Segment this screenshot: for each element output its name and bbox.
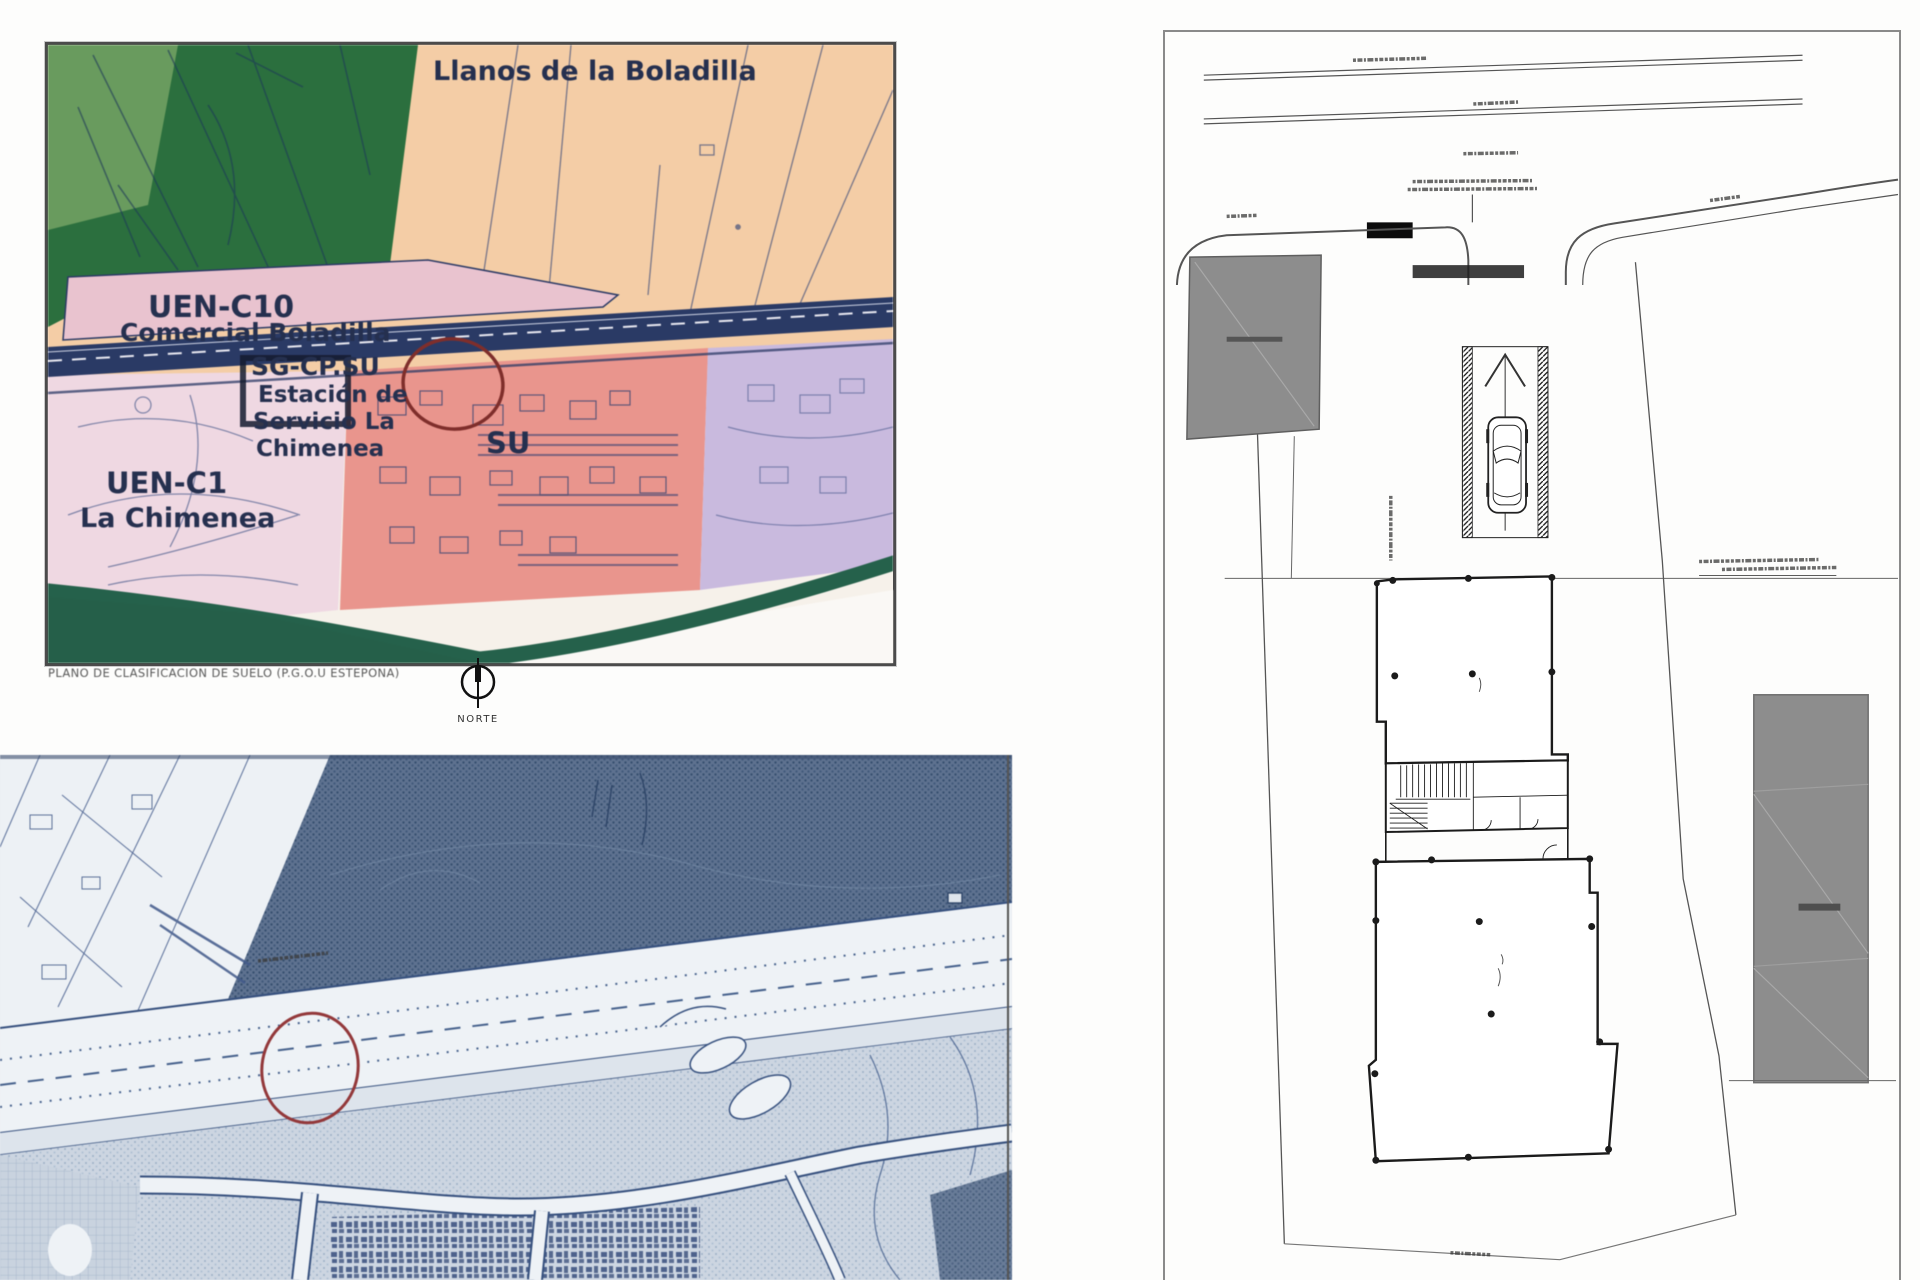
alignment-note [1699,560,1836,576]
right-building [1729,695,1896,1083]
station-building [1369,574,1618,1164]
zoning-map-canvas: Llanos de la Boladilla UEN-C10 Comercial… [48,45,893,663]
white-pond [48,1224,92,1276]
center-note [1463,153,1518,154]
zone-residential-east [700,339,893,590]
median-road-label [1473,102,1518,104]
label-su: SU [486,426,530,460]
car-lane [1462,347,1548,538]
zoning-map: Llanos de la Boladilla UEN-C10 Comercial… [45,42,896,666]
left-building-label [1227,337,1283,342]
label-uen-c10-name: Comercial Boladilla [120,318,391,347]
north-label: NORTE [457,714,499,725]
upper-road-label [1353,58,1428,60]
label-sg-cp: SG-CP.SU [251,352,380,381]
scanned-plans-page: Llanos de la Boladilla UEN-C10 Comercial… [0,0,1920,1280]
plot-boundary-south [1284,1215,1736,1260]
left-curb-label [1227,215,1257,216]
cadastral-map [0,755,1012,1280]
map-title: Llanos de la Boladilla [433,56,757,87]
scan-top-edge [0,755,1012,759]
label-uen-c1: UEN-C1 [106,466,227,500]
urban-blocks [330,1207,700,1280]
plot-boundary-east [1635,262,1735,1215]
label-uen-c1-name: La Chimenea [80,503,275,534]
right-building-label [1799,904,1841,911]
curb-wall [1413,265,1524,278]
north-symbol: NORTE [448,650,512,728]
right-curb-label [1710,196,1740,200]
right-access-curve [1566,180,1898,285]
north-needle-icon [475,667,481,682]
map-caption: PLANO DE CLASIFICACION DE SUELO (P.G.O.U… [48,666,478,680]
bottom-boundary-label [1450,1253,1490,1255]
label-station-3: Chimenea [256,436,384,462]
site-plan [1163,30,1901,1280]
upper-road [1204,55,1803,80]
left-building [1187,255,1321,578]
label-station-2: Servicio La [253,409,395,435]
median-road [1204,99,1803,124]
label-station-1: Estación de [258,382,408,408]
car-icon [1486,417,1528,512]
